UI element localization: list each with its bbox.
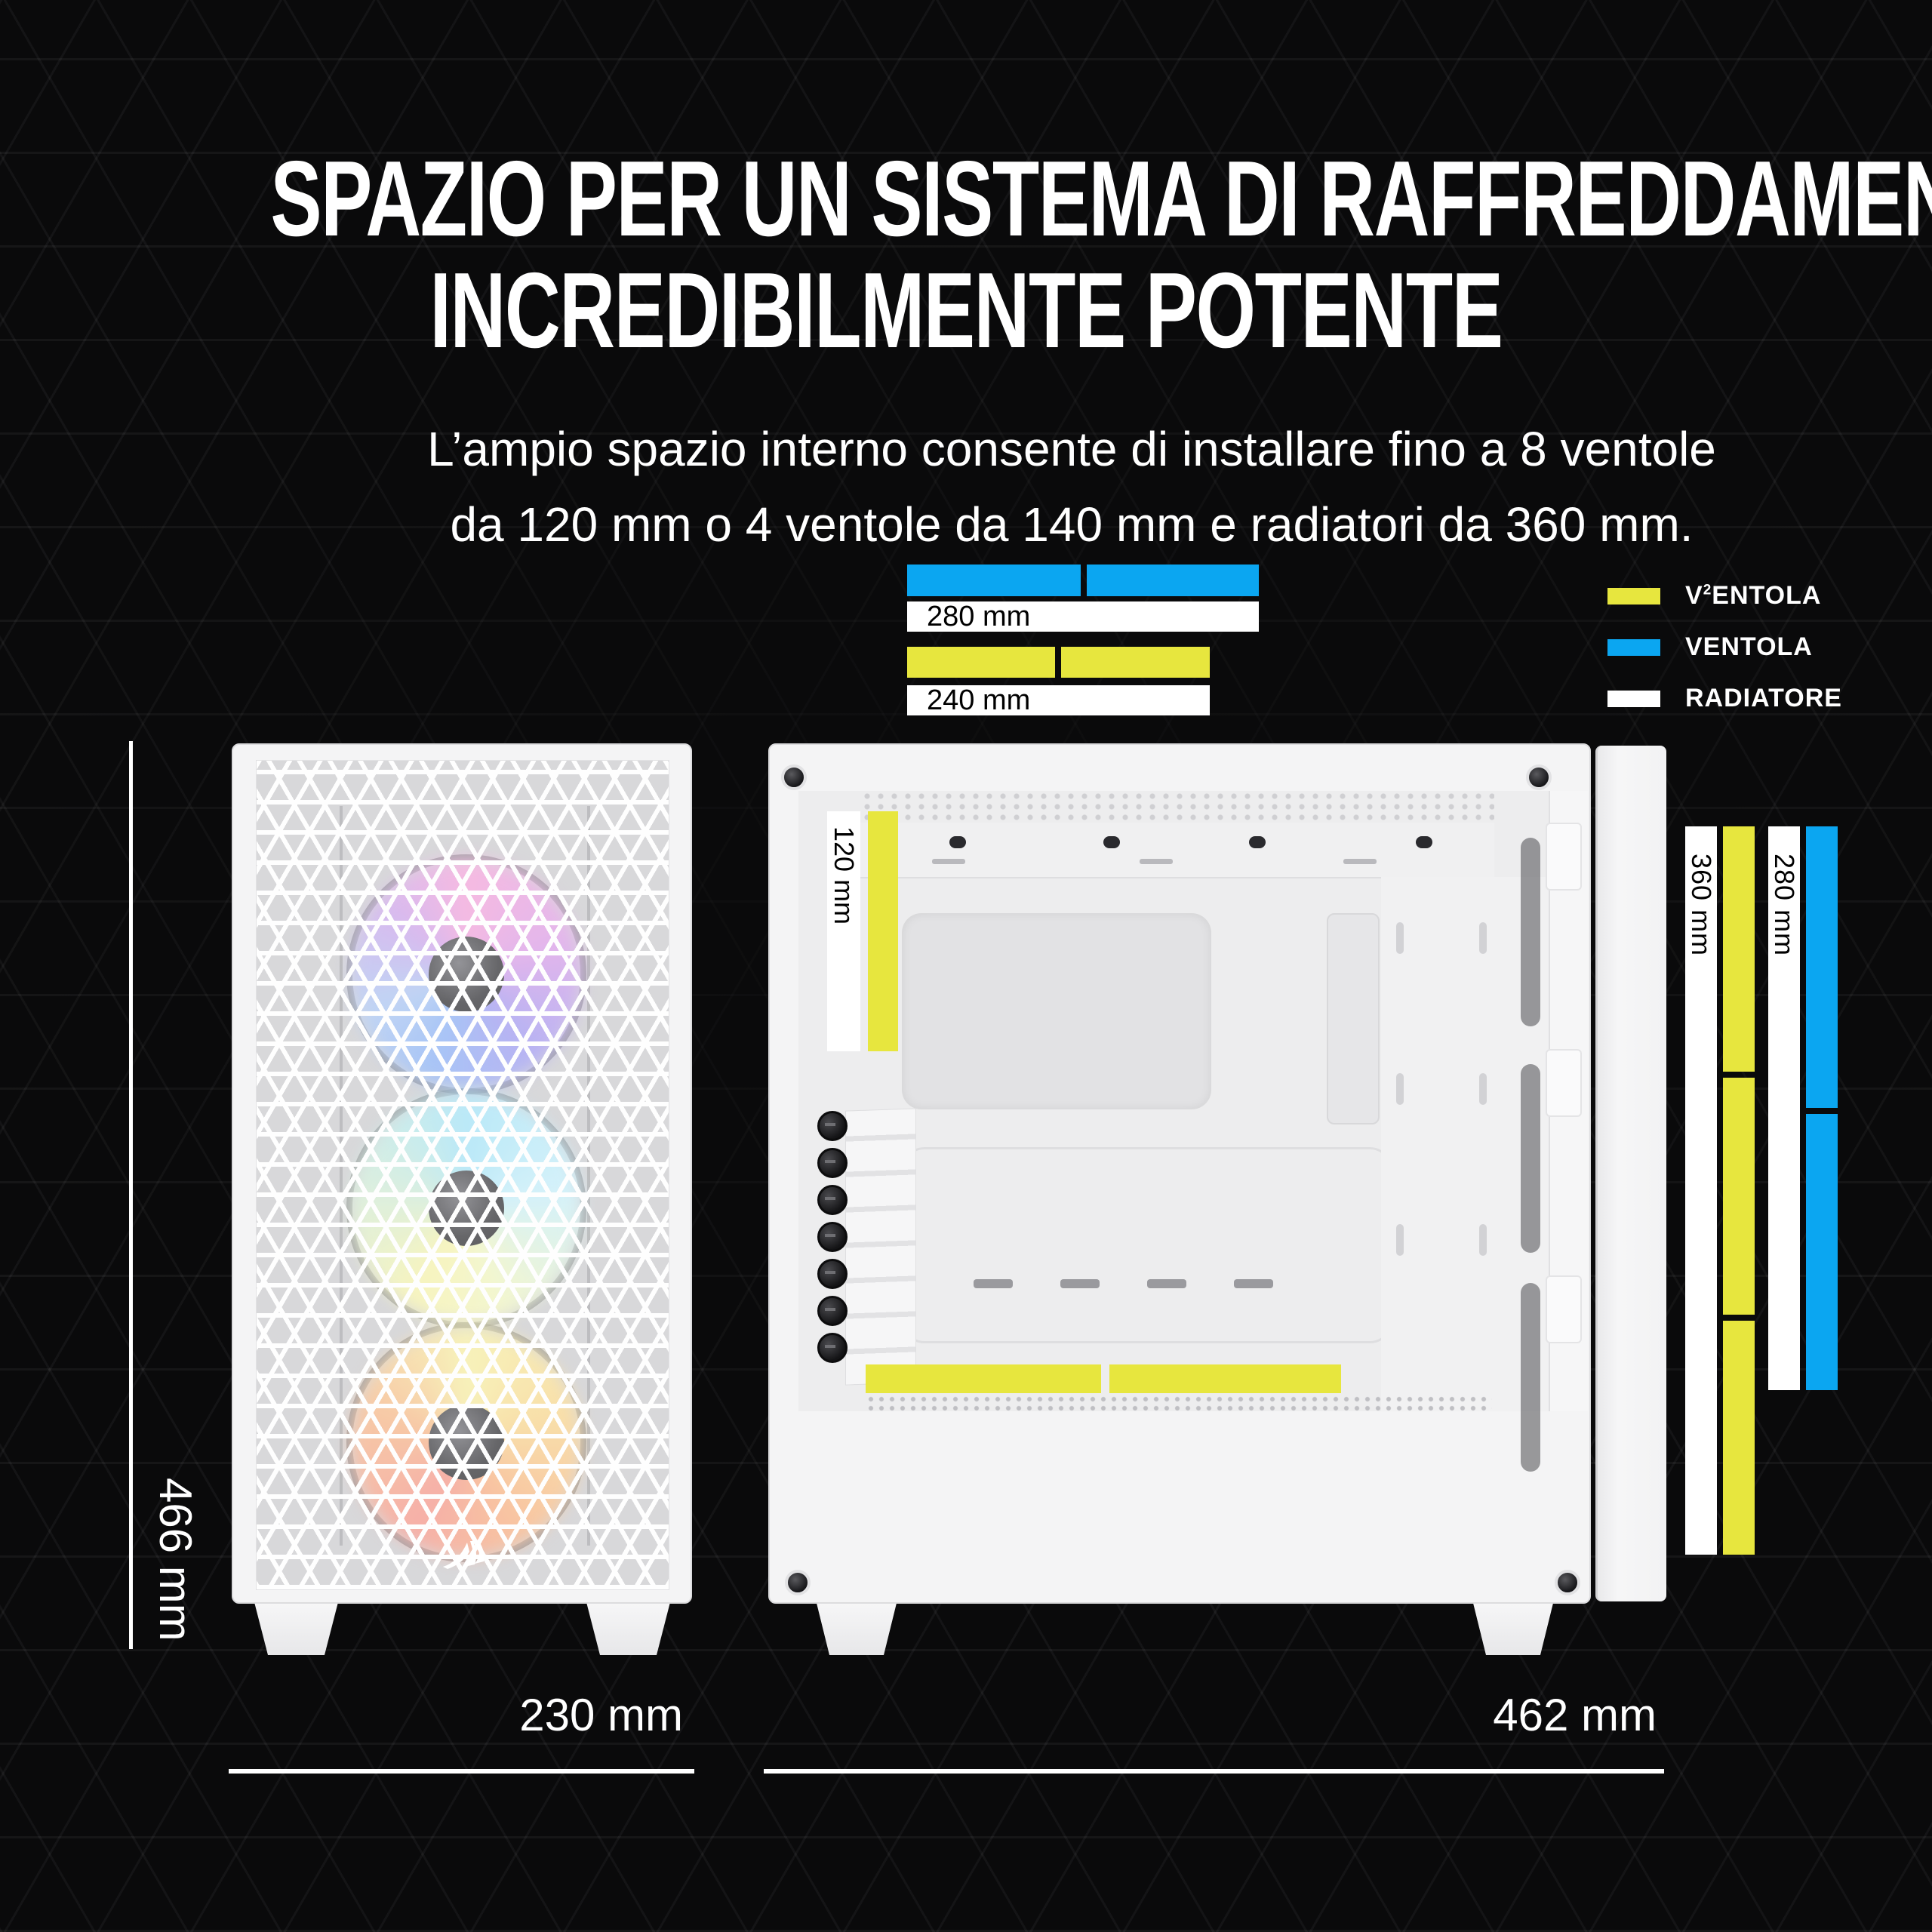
bottom-fan-yellow-segment-2 xyxy=(1109,1364,1341,1393)
mounted-front-fan-edge xyxy=(1521,1064,1540,1253)
rear-fan-120-label: 120 mm xyxy=(828,826,860,924)
dim-line-front-width xyxy=(229,1769,694,1774)
legend-swatch-yellow xyxy=(1607,588,1660,605)
right-fan-yellow-segment-3 xyxy=(1723,1321,1755,1555)
pcie-thumbscrew xyxy=(817,1185,848,1215)
cable-routing-slot xyxy=(1147,1279,1186,1288)
rail-slot xyxy=(1140,859,1173,864)
legend-label-ventola: VENTOLA xyxy=(1685,632,1813,662)
rear-fan-120-label-box: 120 mm xyxy=(827,811,860,1051)
legend-label-ventola-rgb: V2ENTOLA xyxy=(1685,581,1821,611)
front-rail-bracket xyxy=(1546,1275,1582,1343)
title-line-2: INCREDIBILMENTE POTENTE xyxy=(270,255,1661,367)
top-fan-yellow-segment-2 xyxy=(1061,647,1210,678)
right-radiator-280-label: 280 mm xyxy=(1768,854,1800,956)
case-screw xyxy=(785,1570,811,1595)
right-fan-blue-segment-1 xyxy=(1806,826,1838,1108)
title-line-1: SPAZIO PER UN SISTEMA DI RAFFREDDAMENTO xyxy=(270,143,1661,255)
pcie-thumbscrew xyxy=(817,1333,848,1363)
top-fan-blue-segment-2 xyxy=(1087,565,1259,596)
legend-row-ventola-rgb: V2ENTOLA xyxy=(1607,581,1842,611)
mounted-front-fan-edge xyxy=(1521,1283,1540,1472)
top-radiator-280-label: 280 mm xyxy=(907,601,1259,632)
infographic-canvas: SPAZIO PER UN SISTEMA DI RAFFREDDAMENTO … xyxy=(0,0,1932,1932)
legend: V2ENTOLA VENTOLA RADIATORE xyxy=(1607,581,1842,713)
dim-label-side-depth: 462 mm xyxy=(1430,1689,1657,1741)
dim-label-height: 466 mm xyxy=(149,1478,202,1641)
subtitle-line-2: da 120 mm o 4 ventole da 140 mm e radiat… xyxy=(106,487,1932,562)
legend-label-radiatore: RADIATORE xyxy=(1685,684,1842,713)
bottom-fan-yellow-segment-1 xyxy=(866,1364,1101,1393)
fan-mount-slot xyxy=(1479,1073,1487,1105)
top-radiator-240-bar: 240 mm xyxy=(907,685,1210,715)
right-fan-yellow-segment-1 xyxy=(1723,826,1755,1072)
case-screw xyxy=(781,764,807,790)
legend-swatch-white xyxy=(1607,691,1660,707)
right-radiator-360-bar: 360 mm xyxy=(1685,826,1717,1555)
pcie-thumbscrew xyxy=(817,1222,848,1252)
legend-swatch-blue xyxy=(1607,639,1660,656)
cable-routing-slot xyxy=(974,1279,1013,1288)
side-foot-right xyxy=(1468,1604,1558,1655)
right-fan-yellow-segment-2 xyxy=(1723,1078,1755,1315)
rail-slot xyxy=(1343,859,1377,864)
corsair-logo-icon xyxy=(441,1537,490,1571)
top-fan-rail xyxy=(860,823,1494,878)
subtitle-line-1: L’ampio spazio interno consente di insta… xyxy=(106,411,1932,487)
legend-row-ventola: VENTOLA xyxy=(1607,632,1842,662)
mounted-front-fan-edge xyxy=(1521,838,1540,1026)
dim-label-front-width: 230 mm xyxy=(457,1689,683,1741)
fan-mount-slot xyxy=(1396,1073,1404,1105)
fan-mount-slot xyxy=(1396,1224,1404,1256)
case-screw xyxy=(1526,764,1552,790)
fan-mount-slot xyxy=(1479,922,1487,954)
rail-hole xyxy=(1416,836,1432,848)
right-radiator-360-label: 360 mm xyxy=(1685,854,1717,956)
fan-mount-slot xyxy=(1479,1224,1487,1256)
rail-hole xyxy=(949,836,966,848)
top-fan-blue-segment-1 xyxy=(907,565,1081,596)
right-radiator-280-bar: 280 mm xyxy=(1768,826,1800,1390)
side-foot-left xyxy=(811,1604,902,1655)
page-subtitle: L’ampio spazio interno consente di insta… xyxy=(0,411,1932,562)
rail-hole xyxy=(1249,836,1266,848)
page-title: SPAZIO PER UN SISTEMA DI RAFFREDDAMENTO … xyxy=(0,143,1932,367)
front-foot-right xyxy=(581,1604,675,1655)
pcie-slot-covers xyxy=(845,1108,916,1385)
case-screw xyxy=(1555,1570,1580,1595)
rail-slot xyxy=(932,859,965,864)
pcie-thumbscrew xyxy=(817,1148,848,1178)
cable-routing-slot xyxy=(1060,1279,1100,1288)
top-fan-yellow-segment-1 xyxy=(907,647,1055,678)
front-foot-left xyxy=(249,1604,343,1655)
legend-row-radiatore: RADIATORE xyxy=(1607,684,1842,713)
motherboard-plate-seam xyxy=(902,1147,1392,1343)
front-rail-bracket xyxy=(1546,1049,1582,1117)
mesh-triangle-lattice xyxy=(257,761,669,1589)
rear-fan-yellow-bar xyxy=(868,811,898,1051)
cable-routing-slot xyxy=(1234,1279,1273,1288)
fan-mount-slot xyxy=(1396,922,1404,954)
front-rail-bracket xyxy=(1546,823,1582,891)
right-fan-blue-segment-2 xyxy=(1806,1114,1838,1390)
pcie-thumbscrew xyxy=(817,1111,848,1141)
top-vent-filter xyxy=(860,791,1494,823)
vertical-gpu-slot xyxy=(1327,913,1380,1124)
dim-line-height xyxy=(129,741,133,1649)
pcie-thumbscrew xyxy=(817,1296,848,1326)
motherboard-tray-cutout xyxy=(902,913,1211,1109)
top-radiator-240-label: 240 mm xyxy=(907,685,1210,715)
top-radiator-280-bar: 280 mm xyxy=(907,601,1259,632)
rail-hole xyxy=(1103,836,1120,848)
pcie-thumbscrew xyxy=(817,1259,848,1289)
dim-line-side-depth xyxy=(764,1769,1664,1774)
front-mesh-panel xyxy=(256,760,669,1590)
front-panel-ajar xyxy=(1595,746,1666,1601)
psu-vent-floor xyxy=(866,1395,1492,1413)
